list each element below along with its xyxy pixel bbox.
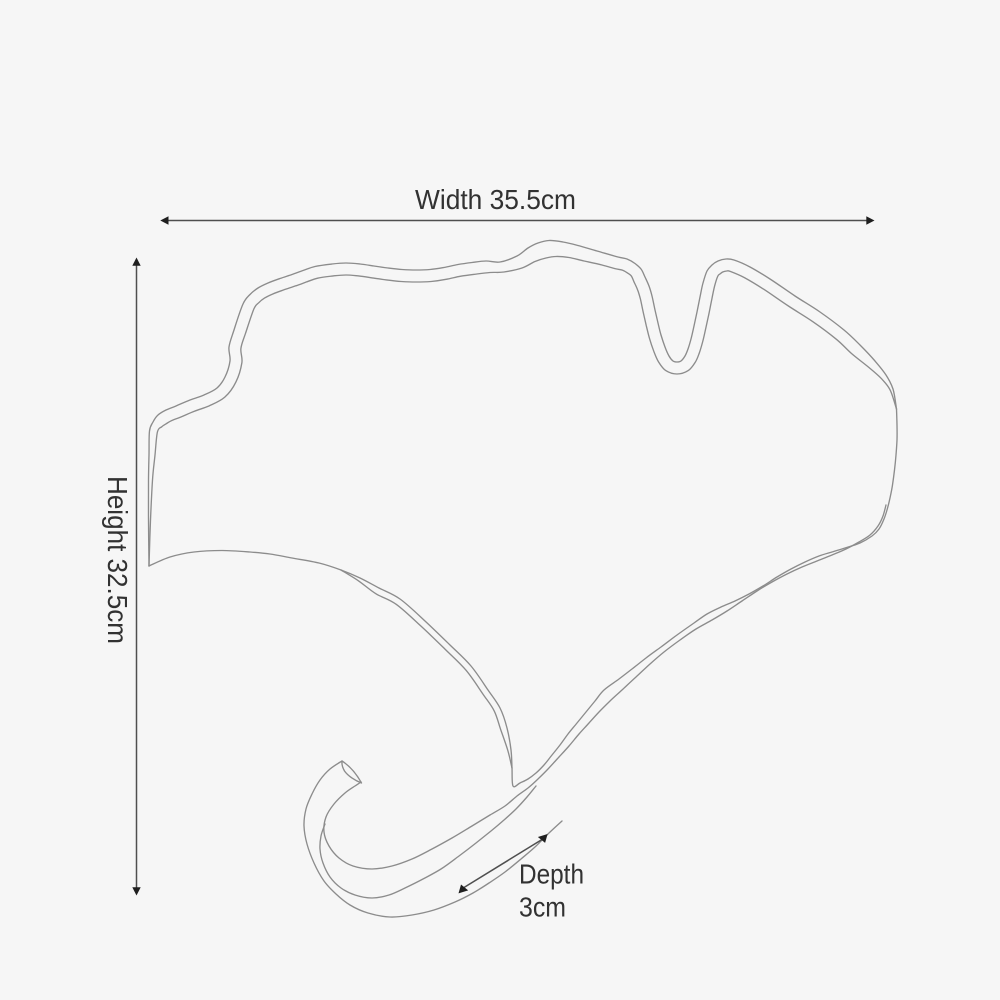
svg-text:Width 35.5cm: Width 35.5cm [415, 184, 576, 215]
svg-text:Depth: Depth [519, 859, 584, 890]
svg-text:Height 32.5cm: Height 32.5cm [102, 476, 133, 644]
svg-text:3cm: 3cm [519, 892, 566, 923]
